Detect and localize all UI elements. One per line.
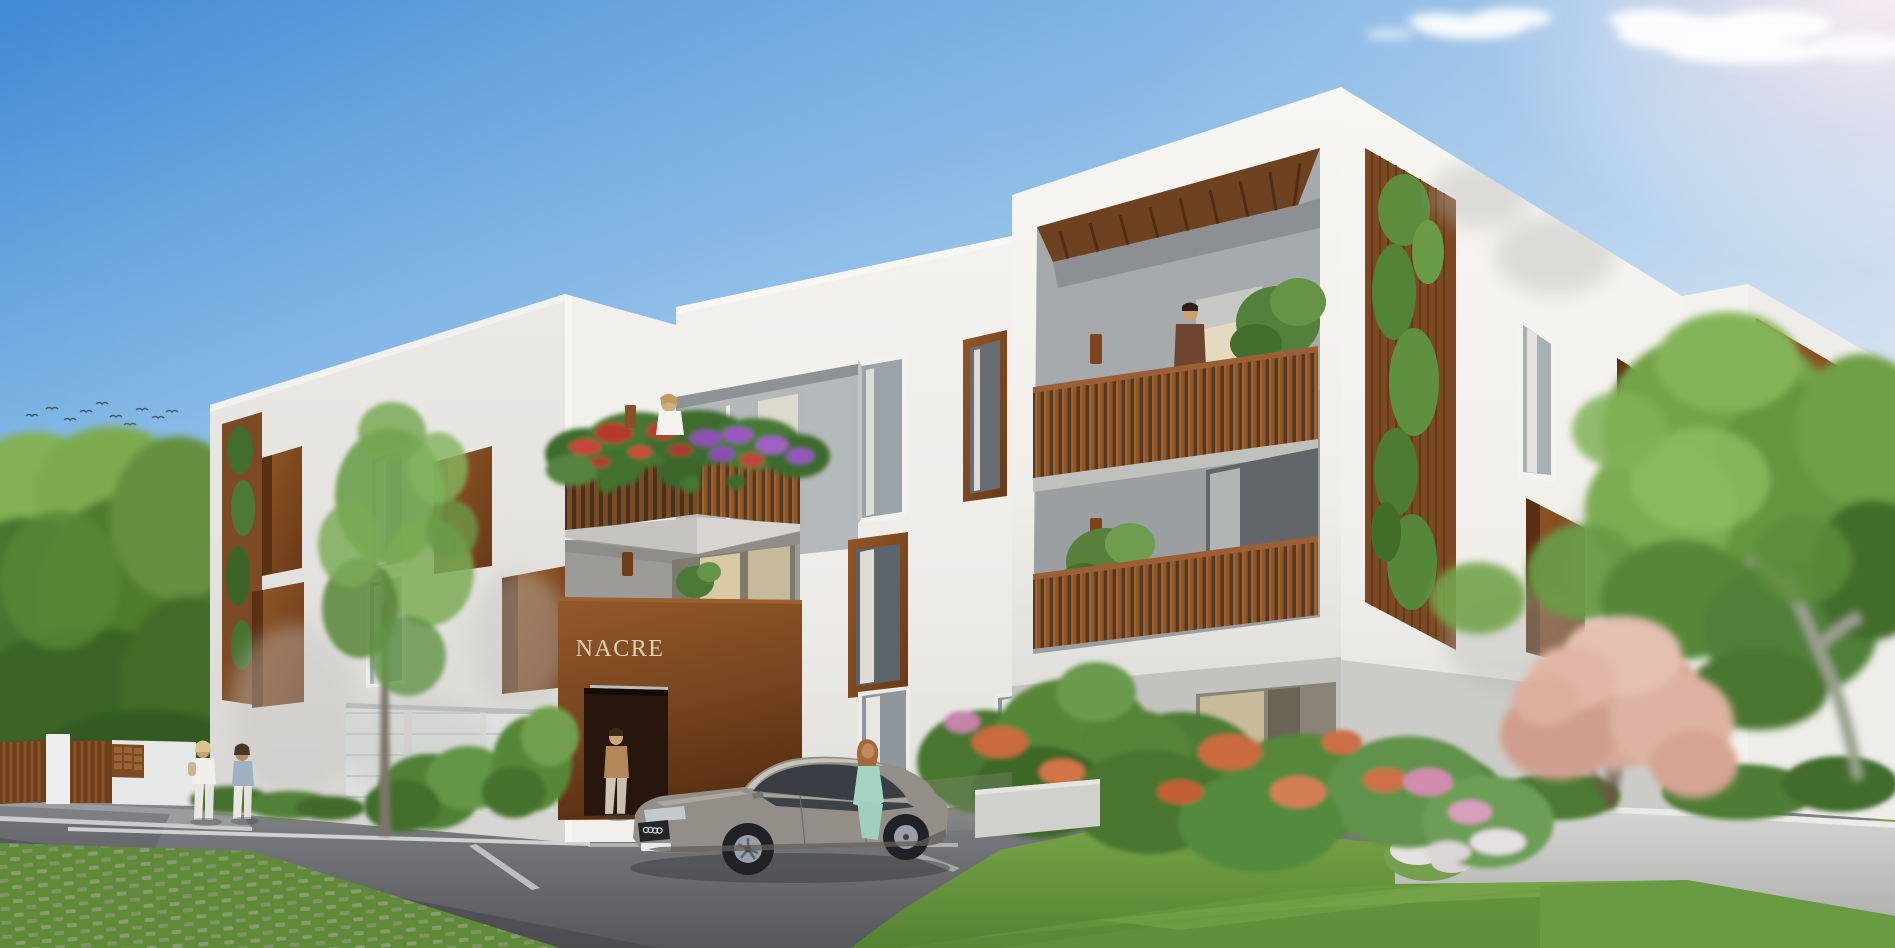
svg-text:NACRE: NACRE bbox=[576, 636, 665, 662]
